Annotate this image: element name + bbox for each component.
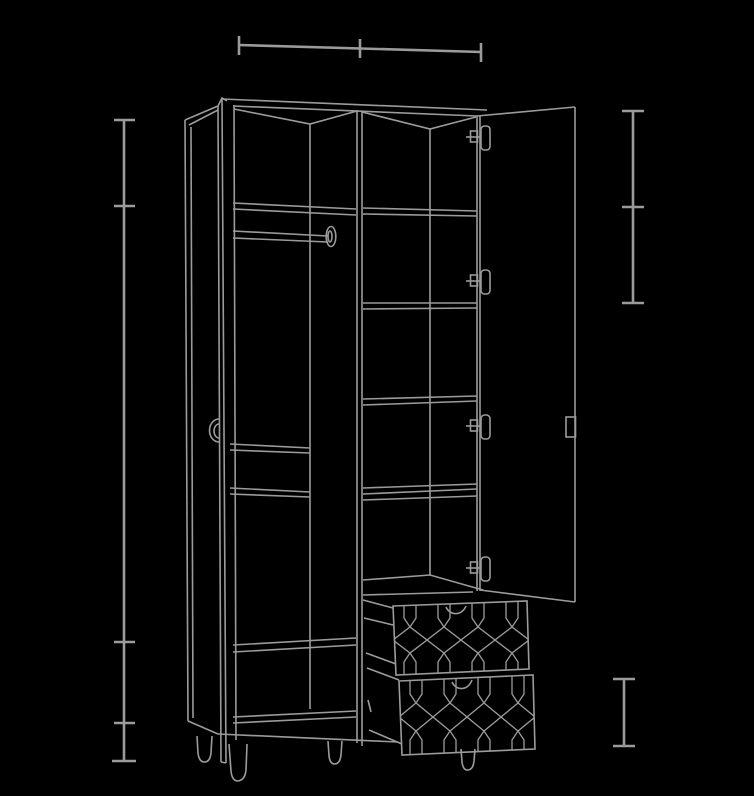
left-side-panel: [185, 106, 218, 734]
left-door-open: [210, 98, 228, 763]
technical-drawing-canvas: [0, 0, 754, 796]
wardrobe-drawing: [0, 0, 754, 796]
center-divider: [357, 110, 362, 746]
lower-drawer: [399, 675, 535, 755]
right-door-open: [477, 107, 576, 602]
upper-drawer: [393, 601, 529, 675]
hanging-rail: [233, 227, 336, 247]
left-height-dimension: [112, 120, 136, 761]
door-hinges: [466, 126, 490, 581]
hinge-icon: [466, 126, 490, 150]
hinge-stile: [477, 116, 480, 591]
foot: [328, 741, 342, 764]
hinge-icon: [466, 557, 490, 581]
hinge-icon: [466, 415, 490, 439]
left-compartment-shelves: [218, 203, 398, 742]
right-lower-height-dimension: [613, 679, 635, 746]
right-door-handle: [566, 417, 576, 437]
top-width-dimension: [239, 36, 481, 62]
foot: [197, 736, 212, 762]
foot: [229, 744, 247, 781]
right-compartment-shelves: [363, 208, 483, 595]
hinge-icon: [466, 270, 490, 294]
left-door-handle: [210, 419, 220, 442]
right-upper-height-dimension: [622, 111, 644, 303]
